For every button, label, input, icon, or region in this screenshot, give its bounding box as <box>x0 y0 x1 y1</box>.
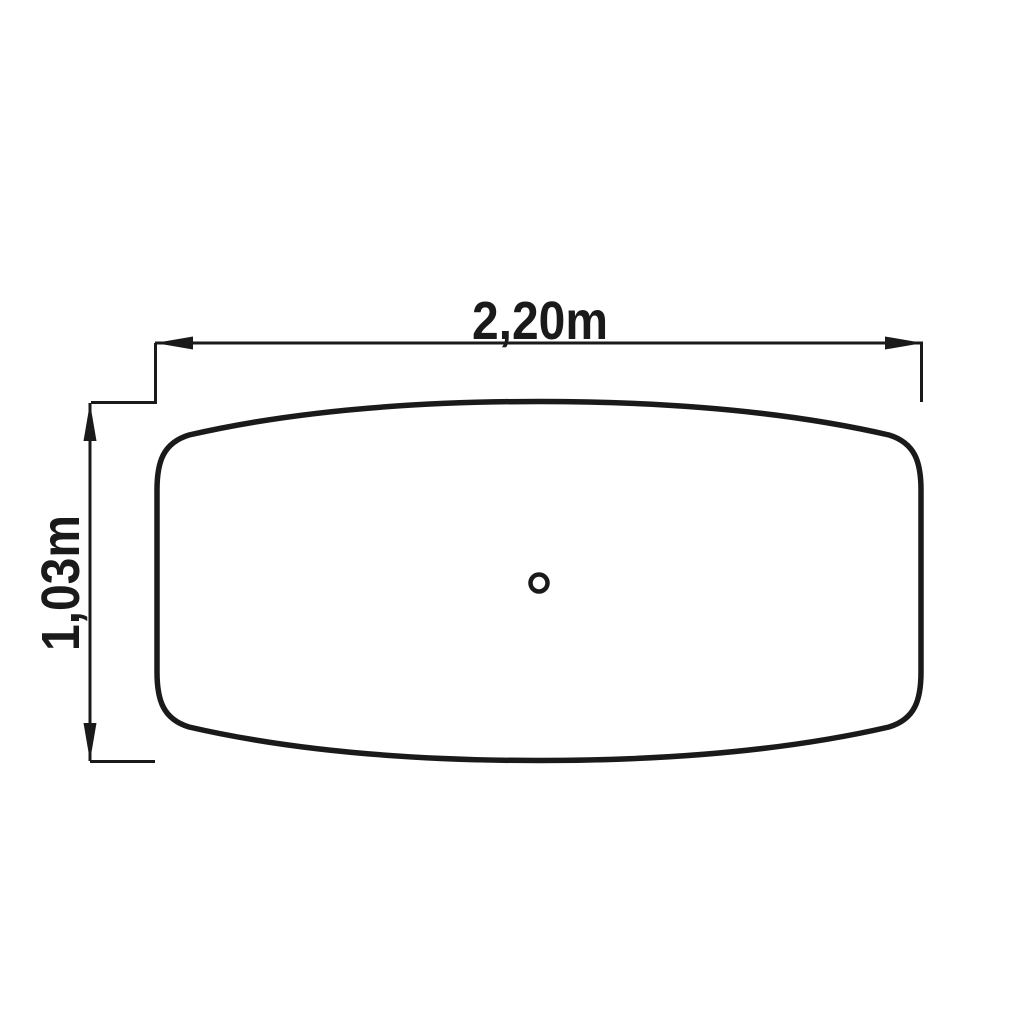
drawing-canvas: 2,20m 1,03m <box>0 0 1024 1024</box>
width-arrow-left-icon <box>155 337 193 350</box>
width-arrow-right-icon <box>885 337 923 350</box>
width-dimension-label: 2,20m <box>472 291 608 351</box>
center-hole-circle <box>531 575 548 592</box>
dimension-height: 1,03m <box>31 403 155 762</box>
dimension-width: 2,20m <box>91 291 923 403</box>
height-dimension-label: 1,03m <box>31 515 91 651</box>
height-arrow-top-icon <box>84 403 97 441</box>
tabletop-dimension-drawing: 2,20m 1,03m <box>0 0 1024 1024</box>
height-arrow-bottom-icon <box>84 723 97 761</box>
width-extension-left <box>91 343 156 403</box>
drawing-group: 2,20m 1,03m <box>31 291 923 762</box>
